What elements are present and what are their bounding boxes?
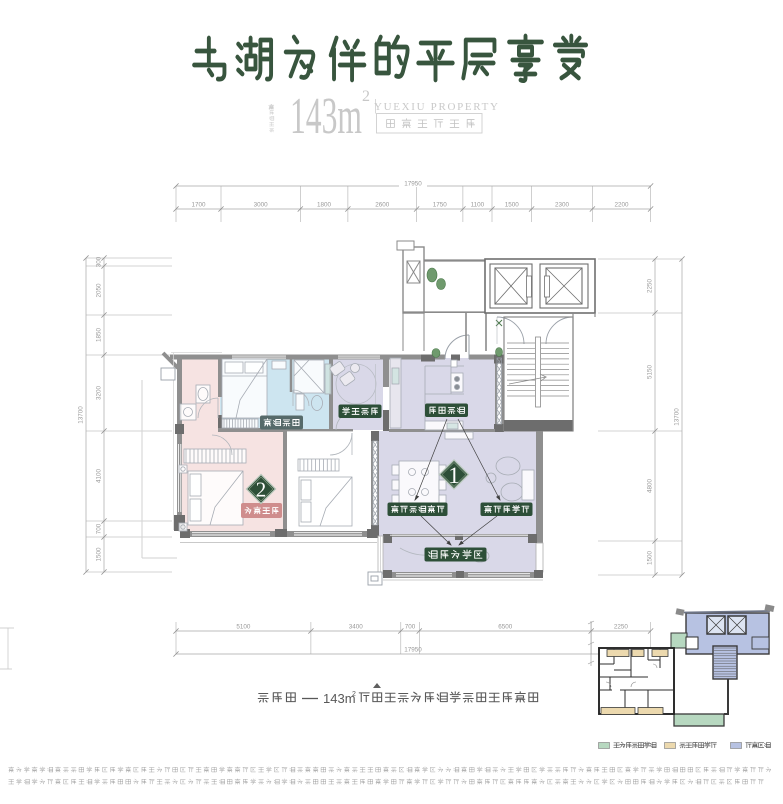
- svg-text:1: 1: [448, 463, 460, 488]
- svg-text:3000: 3000: [254, 202, 269, 209]
- svg-text:13700: 13700: [78, 406, 85, 424]
- svg-text:1750: 1750: [433, 202, 448, 209]
- svg-text:2300: 2300: [555, 202, 570, 209]
- svg-text:17950: 17950: [404, 647, 422, 654]
- svg-text:1500: 1500: [647, 551, 654, 566]
- svg-text:2250: 2250: [614, 624, 629, 631]
- svg-text:1700: 1700: [191, 202, 206, 209]
- svg-text:2200: 2200: [614, 202, 629, 209]
- svg-text:2: 2: [362, 88, 370, 105]
- svg-text:143m: 143m: [290, 88, 362, 145]
- svg-text:1500: 1500: [505, 202, 520, 209]
- svg-text:5150: 5150: [647, 365, 654, 380]
- svg-text:1100: 1100: [471, 202, 485, 209]
- svg-text:13700: 13700: [674, 408, 681, 426]
- svg-text:17950: 17950: [404, 181, 422, 188]
- svg-text:1500: 1500: [96, 547, 103, 562]
- svg-text:2: 2: [352, 691, 356, 698]
- svg-text:2250: 2250: [647, 279, 654, 294]
- svg-text:4800: 4800: [647, 479, 654, 494]
- svg-text:700: 700: [405, 624, 416, 631]
- svg-text:300: 300: [96, 256, 103, 267]
- svg-text:3400: 3400: [349, 624, 364, 631]
- svg-text:YUEXIU PROPERTY: YUEXIU PROPERTY: [374, 101, 500, 113]
- svg-text:143m: 143m: [323, 691, 356, 706]
- svg-text:1800: 1800: [317, 202, 332, 209]
- svg-text:3200: 3200: [96, 386, 103, 401]
- svg-text:4100: 4100: [96, 469, 103, 484]
- svg-text:2050: 2050: [96, 283, 103, 298]
- svg-text:2: 2: [256, 478, 267, 502]
- svg-text:5100: 5100: [236, 624, 251, 631]
- svg-text:700: 700: [96, 523, 103, 534]
- svg-text:2600: 2600: [375, 202, 390, 209]
- svg-text:1850: 1850: [96, 328, 103, 343]
- svg-text:6500: 6500: [498, 624, 513, 631]
